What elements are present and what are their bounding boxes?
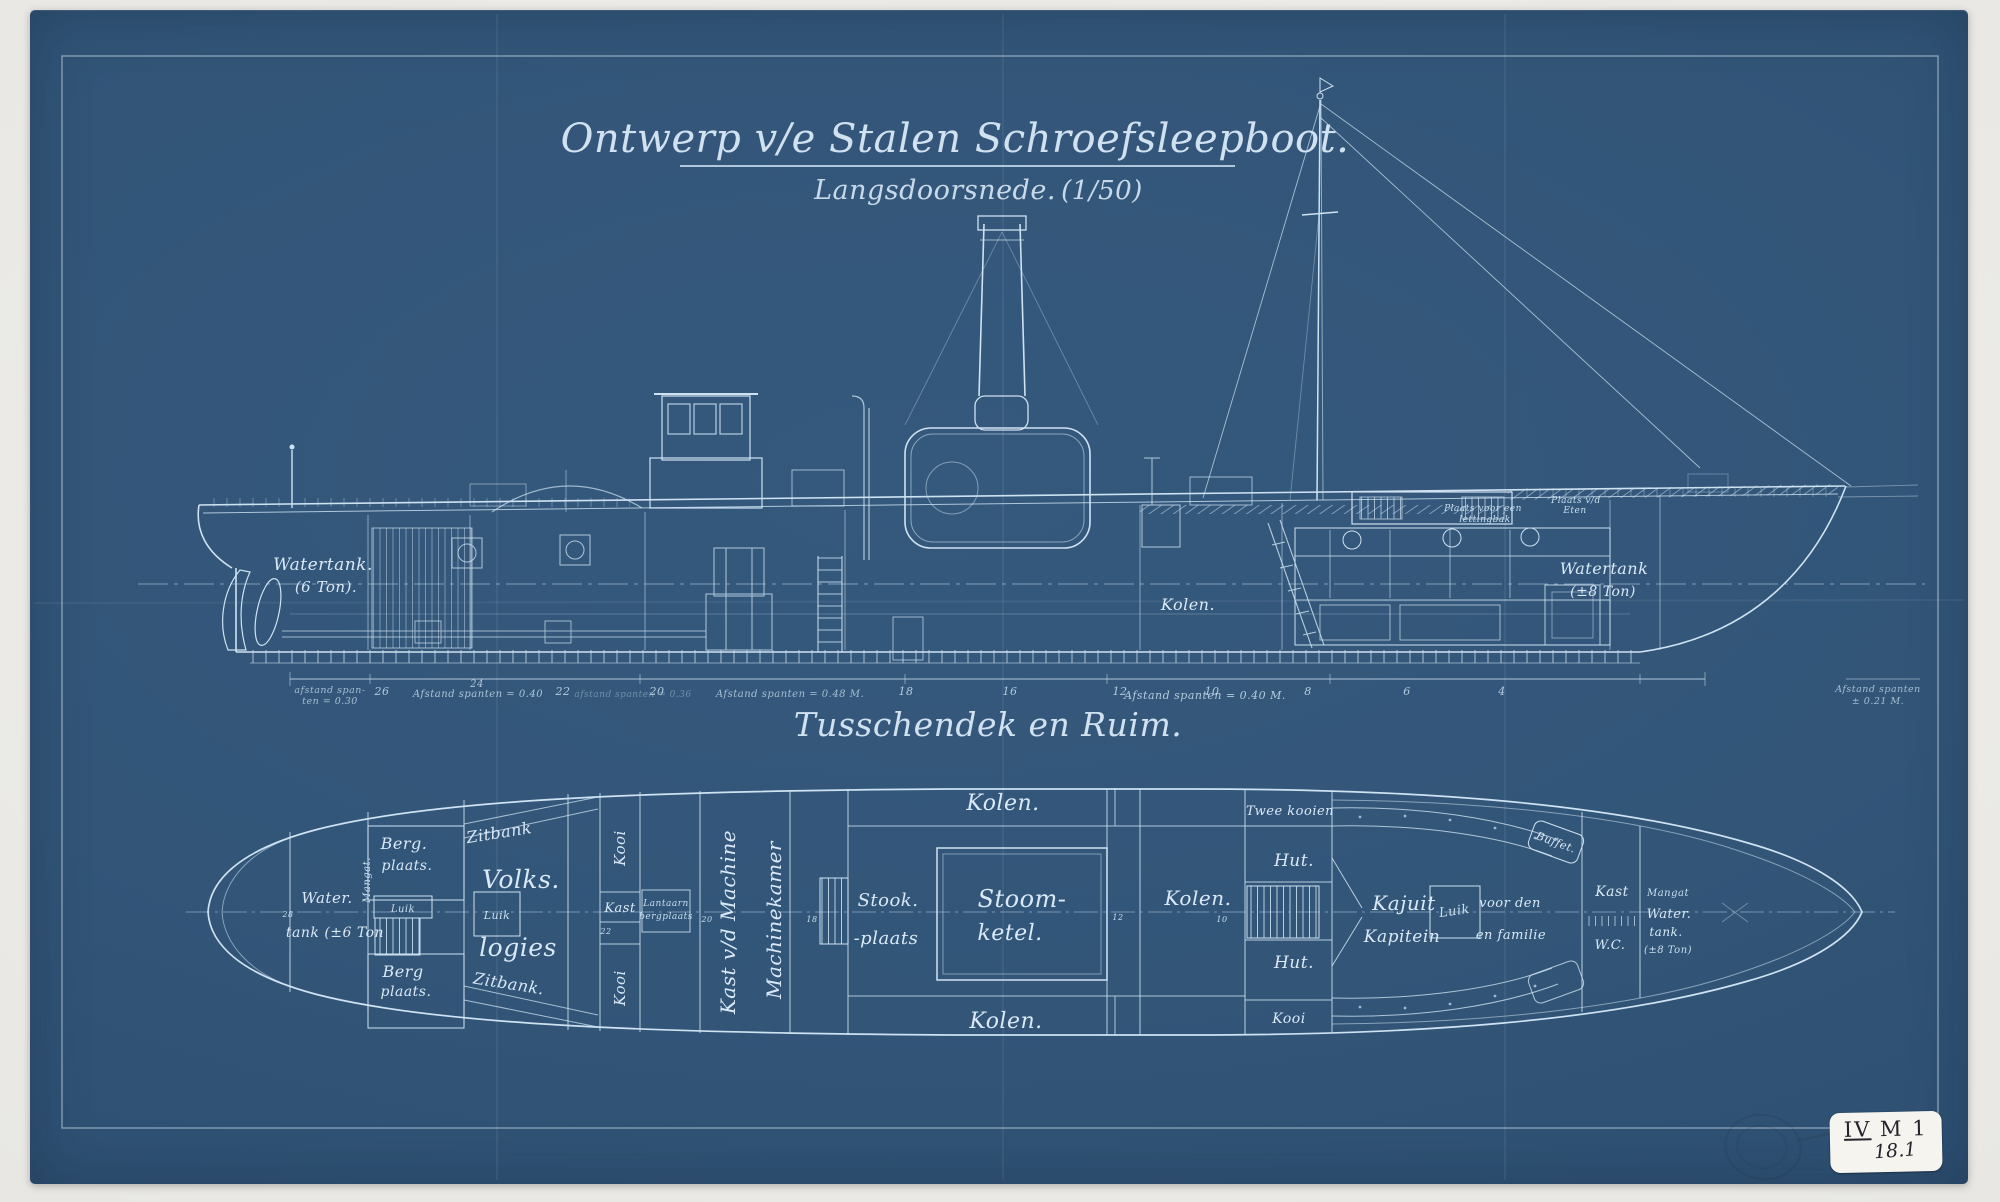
steam-engine [706,548,772,650]
label-bergplaats-top: Berg. [380,834,428,853]
frame-number-28: 28 [281,910,293,919]
label-kast-machine: Kast v/d Machine [716,830,740,1015]
label-kapitein: Kapitein [1363,927,1440,947]
dim-note-036: afstand spanten = 0.36 [574,690,691,700]
stokehold-grate [820,878,848,944]
label-kast-left: Kast [603,901,636,916]
dim-note-bow: Afstand spanten [1834,684,1921,695]
frame-number: 22 [555,685,571,698]
label-kolen-side: Kolen. [1160,595,1215,614]
flagpole-truck [290,445,295,450]
dim-note-048: Afstand spanten = 0.48 M. [715,689,864,700]
dim-note-aft: afstand span- [294,685,365,696]
fore-stairs [1247,886,1319,938]
blueprint-sheet: Ontwerp v/e Stalen Schroefsleepboot. Lan… [30,10,1968,1184]
label-watertank-fore: Watertank [1560,559,1649,578]
dim-note-040a: Afstand spanten = 0.40 [412,689,543,700]
label-bergplaats-bot: Berg [381,962,423,981]
engine-room-ladder [818,556,842,652]
funnel [905,216,1098,425]
aft-rail-stanchions [210,498,630,507]
label-en-familie: en familie [1476,928,1546,943]
label-luik-mid: Luik [1437,902,1471,921]
label-volks: Volks. [482,865,560,894]
scale-note: (1/50) [1061,176,1143,206]
dimension-line: 26 24 22 20 18 16 12 10 8 6 4 afstand sp… [290,672,1921,707]
label-lantaarn: Lantaarn [642,899,689,909]
frame-ticks [250,650,1640,663]
propeller-shaft [282,621,706,643]
rigging-stays [1203,104,1851,500]
label-mangat: Mangat [1646,888,1690,899]
title-block: Ontwerp v/e Stalen Schroefsleepboot. Lan… [561,116,1350,206]
label-watertank-aft: Watertank. [273,555,373,575]
label-kajuit: Kajuit [1371,891,1436,915]
frame-number: 16 [1003,685,1018,698]
label-kolen-right: Kolen. [1164,886,1232,910]
label-lettingbak-2: lettingbak [1459,515,1510,525]
label-kolen-bottom: Kolen. [968,1009,1042,1034]
label-mangat-4: (±8 Ton) [1644,945,1692,956]
buffet-box: Buffet. [1526,819,1585,865]
label-bergplaats-bot-2: plaats. [381,984,432,1000]
label-bergplaats-top-2: plaats. [382,858,433,874]
boiler [905,396,1090,548]
buffet-box-mirror [1526,959,1585,1005]
label-kolen-top: Kolen. [965,791,1039,816]
label-zitbank-bot: Zitbank. [471,968,546,998]
deck-plan-title: Tusschendek en Ruim. [794,705,1183,744]
label-machinekamer: Machinekamer [762,840,786,1000]
label-luik-aft: Luik [390,904,415,915]
label-lettingbak: Plaats voor een [1443,504,1522,514]
label-luik-volks: Luik [483,909,511,922]
frame-number: 4 [1497,685,1506,698]
label-watertank-aft-2: (6 Ton). [295,578,357,596]
label-mangat-2: Water. [1647,907,1692,922]
label-plaats-vd-2: Eten [1562,506,1586,516]
label-mangat-3: tank. [1649,925,1682,939]
page-title: Ontwerp v/e Stalen Schroefsleepboot. [561,116,1350,162]
label-stookplaats: Stook. [858,890,919,911]
page-subtitle: Langsdoorsnede. [813,175,1056,206]
archive-roman: IV [1844,1117,1872,1142]
steam-pipe [852,396,869,560]
frame-number: 18 [899,685,914,698]
frame-number: 26 [374,685,390,698]
aft-cabin [372,528,590,648]
label-mangat-aft: Mangat. [362,857,373,904]
label-wc: W.C. [1595,938,1626,953]
archive-rest: M 1 [1880,1116,1928,1141]
dim-note-aft-2: ten = 0.30 [302,696,358,707]
label-kast-right: Kast [1594,884,1629,900]
engine-skylight [792,470,844,506]
dim-note-bow-2: ± 0.21 M. [1852,696,1904,707]
label-hut-bot: Hut. [1273,953,1314,973]
captain-cabin [1295,528,1610,645]
frame-number-18: 18 [806,915,817,924]
label-kooi-top: Kooi [611,830,629,867]
plan-boiler [937,848,1107,980]
blueprint-drawing: Ontwerp v/e Stalen Schroefsleepboot. Lan… [30,10,1968,1184]
blueprint-photo: Ontwerp v/e Stalen Schroefsleepboot. Lan… [0,0,2000,1202]
frame-number-20: 20 [700,915,712,924]
label-stookplaats-2: -plaats [854,928,919,949]
label-stoomketel: Stoom- [978,885,1067,913]
propeller [250,576,286,647]
label-stoomketel-2: ketel. [977,921,1042,946]
label-watertank-plan-2: tank (±6 Ton [286,925,384,941]
kast-wc-divider [1584,916,1638,926]
deck-plan: Buffet. Water. tank (±6 Ton 28 Mangat. B… [186,789,1895,1035]
label-kooi-right: Kooi [1271,1011,1305,1027]
label-kooi-bot: Kooi [611,970,629,1007]
archive-sticker: IV M 1 18.1 [1829,1111,1942,1173]
label-hut-top: Hut. [1273,851,1314,871]
dim-note-040b: Afstand spanten = 0.40 M. [1123,689,1286,702]
frame-number-10: 10 [1216,915,1227,924]
label-plaats-vd: Plaats v/d [1550,496,1601,506]
frame-number-22: 22 [599,927,611,936]
wheelhouse [650,394,762,508]
frame-number: 6 [1403,685,1411,698]
label-watertank-plan: Water. [301,889,352,907]
label-twee-kooien: Twee kooien [1246,804,1334,819]
label-voor-den: voor den [1479,896,1541,911]
label-watertank-fore-2: (±8 Ton) [1570,584,1636,600]
label-lantaarn-2: bergplaats [639,912,693,922]
bow-cross-mark [1722,903,1748,922]
label-logies: logies [479,933,557,962]
frame-number-12: 12 [1112,913,1123,922]
label-zitbank-top: Zitbank [464,818,533,847]
frame-number: 8 [1304,685,1312,698]
